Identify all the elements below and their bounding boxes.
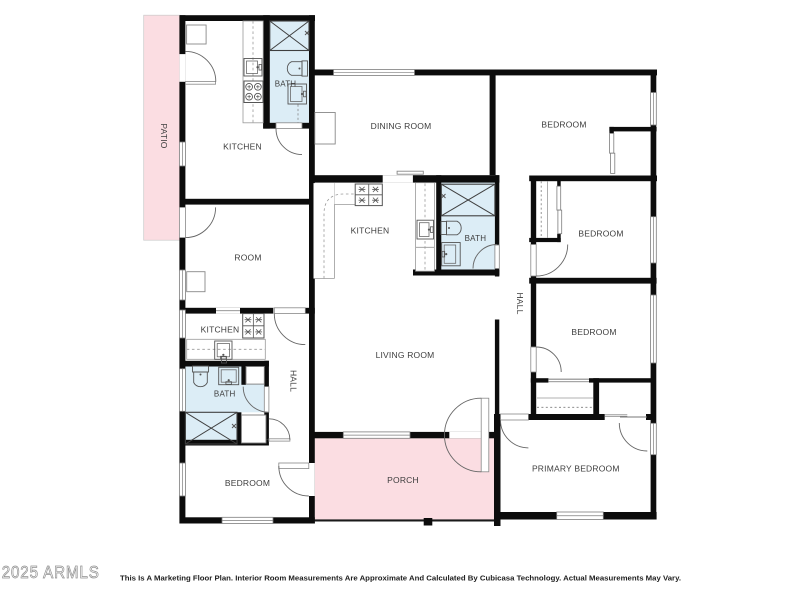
svg-text:2025 ARMLS: 2025 ARMLS bbox=[2, 562, 100, 582]
svg-text:KITCHEN: KITCHEN bbox=[223, 142, 262, 152]
svg-text:BEDROOM: BEDROOM bbox=[541, 119, 586, 129]
svg-text:PORCH: PORCH bbox=[387, 475, 419, 485]
svg-text:KITCHEN: KITCHEN bbox=[201, 325, 240, 335]
svg-text:KITCHEN: KITCHEN bbox=[351, 226, 390, 236]
svg-text:HALL: HALL bbox=[515, 292, 525, 314]
svg-text:BEDROOM: BEDROOM bbox=[225, 478, 270, 488]
svg-text:BATH: BATH bbox=[214, 389, 236, 398]
svg-text:BEDROOM: BEDROOM bbox=[571, 327, 616, 337]
svg-text:PATIO: PATIO bbox=[159, 123, 169, 148]
svg-text:ROOM: ROOM bbox=[234, 253, 261, 263]
svg-text:PRIMARY BEDROOM: PRIMARY BEDROOM bbox=[532, 463, 620, 473]
svg-text:BATH: BATH bbox=[275, 80, 297, 89]
svg-text:DINING ROOM: DINING ROOM bbox=[371, 121, 432, 131]
svg-text:LIVING ROOM: LIVING ROOM bbox=[376, 350, 435, 360]
svg-text:This Is A Marketing Floor Plan: This Is A Marketing Floor Plan. Interior… bbox=[120, 576, 681, 583]
svg-text:BEDROOM: BEDROOM bbox=[578, 229, 623, 239]
svg-text:HALL: HALL bbox=[289, 370, 299, 392]
svg-text:BATH: BATH bbox=[465, 234, 487, 243]
